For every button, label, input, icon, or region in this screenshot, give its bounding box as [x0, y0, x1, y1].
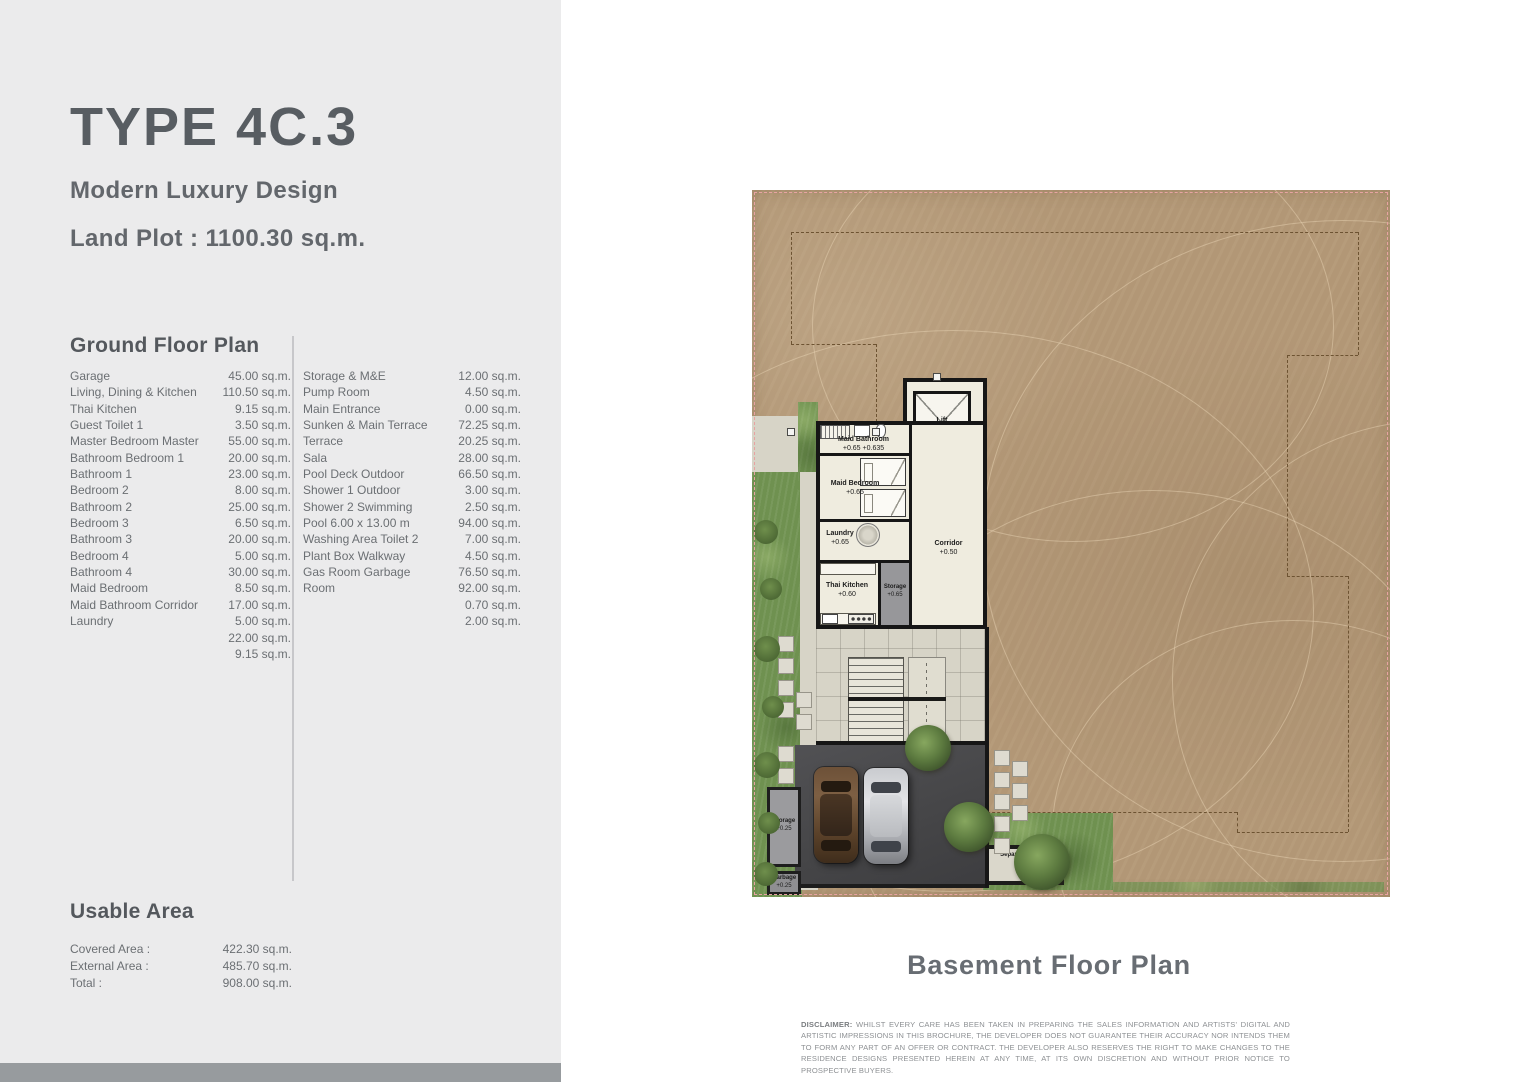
- table-row: Maid Bathroom Corridor17.00 sq.m.: [70, 597, 291, 613]
- disclaimer-label: DISCLAIMER:: [801, 1020, 852, 1029]
- table-row: 9.15 sq.m.: [70, 646, 291, 662]
- table-row: Bedroom 45.00 sq.m.: [70, 548, 291, 564]
- row-value: 9.15 sq.m.: [235, 646, 291, 662]
- table-row: Pump Room4.50 sq.m.: [303, 384, 521, 400]
- row-value: 25.00 sq.m.: [228, 499, 291, 515]
- row-label: Terrace: [303, 433, 343, 449]
- row-label: External Area :: [70, 958, 149, 975]
- row-label: Storage & M&E: [303, 368, 386, 384]
- plan-caption: Basement Floor Plan: [802, 950, 1296, 981]
- design-subtitle: Modern Luxury Design: [70, 177, 338, 205]
- basement-floor-plan-drawing: Garage+0.00 Storage+0.25 Garbage+0.25 Se…: [752, 190, 1390, 897]
- table-row: Bathroom 123.00 sq.m.: [70, 466, 291, 482]
- row-label: Bathroom 2: [70, 499, 132, 515]
- row-value: 0.00 sq.m.: [465, 401, 521, 417]
- row-label: Laundry: [70, 613, 113, 629]
- table-row: Pool 6.00 x 13.00 m94.00 sq.m.: [303, 515, 521, 531]
- row-label: Bathroom Bedroom 1: [70, 450, 184, 466]
- row-value: 12.00 sq.m.: [458, 368, 521, 384]
- row-value: 9.15 sq.m.: [235, 401, 291, 417]
- row-value: 28.00 sq.m.: [458, 450, 521, 466]
- row-label: Living, Dining & Kitchen: [70, 384, 197, 400]
- row-label: Total :: [70, 975, 102, 992]
- ground-floor-plan-heading: Ground Floor Plan: [70, 334, 259, 358]
- row-value: 22.00 sq.m.: [228, 630, 291, 646]
- row-label: Maid Bedroom: [70, 580, 148, 596]
- row-value: 485.70 sq.m.: [223, 958, 292, 975]
- row-value: 2.50 sq.m.: [465, 499, 521, 515]
- table-row: Bathroom Bedroom 120.00 sq.m.: [70, 450, 291, 466]
- row-label: Master Bedroom Master: [70, 433, 199, 449]
- row-label: Shower 2 Swimming: [303, 499, 412, 515]
- table-row: Pool Deck Outdoor66.50 sq.m.: [303, 466, 521, 482]
- row-value: 2.00 sq.m.: [465, 613, 521, 629]
- table-row: Terrace20.25 sq.m.: [303, 433, 521, 449]
- row-value: 4.50 sq.m.: [465, 384, 521, 400]
- table-row: Maid Bedroom8.50 sq.m.: [70, 580, 291, 596]
- row-value: 6.50 sq.m.: [235, 515, 291, 531]
- usable-area-heading: Usable Area: [70, 900, 194, 924]
- row-label: Guest Toilet 1: [70, 417, 143, 433]
- row-label: Bedroom 3: [70, 515, 129, 531]
- row-value: 908.00 sq.m.: [223, 975, 292, 992]
- page-title: TYPE 4C.3: [70, 96, 358, 158]
- table-row: Storage & M&E12.00 sq.m.: [303, 368, 521, 384]
- table-row: Garage45.00 sq.m.: [70, 368, 291, 384]
- row-value: 3.50 sq.m.: [235, 417, 291, 433]
- row-value: 94.00 sq.m.: [458, 515, 521, 531]
- row-value: 20.00 sq.m.: [228, 531, 291, 547]
- table-row: Sunken & Main Terrace72.25 sq.m.: [303, 417, 521, 433]
- row-value: 7.00 sq.m.: [465, 531, 521, 547]
- row-value: 3.00 sq.m.: [465, 482, 521, 498]
- table-row: Thai Kitchen9.15 sq.m.: [70, 401, 291, 417]
- row-label: Garage: [70, 368, 110, 384]
- table-row: Total :908.00 sq.m.: [70, 975, 292, 992]
- row-value: 23.00 sq.m.: [228, 466, 291, 482]
- brochure-page: TYPE 4C.3 Modern Luxury Design Land Plot…: [0, 0, 1524, 1082]
- table-row: Main Entrance0.00 sq.m.: [303, 401, 521, 417]
- table-row: Living, Dining & Kitchen110.50 sq.m.: [70, 384, 291, 400]
- table-row: Bathroom 320.00 sq.m.: [70, 531, 291, 547]
- row-label: Gas Room Garbage: [303, 564, 410, 580]
- disclaimer-text: DISCLAIMER: WHILST EVERY CARE HAS BEEN T…: [801, 1019, 1290, 1076]
- table-row: Bathroom 430.00 sq.m.: [70, 564, 291, 580]
- table-row: Laundry5.00 sq.m.: [70, 613, 291, 629]
- table-row: Guest Toilet 13.50 sq.m.: [70, 417, 291, 433]
- area-table-right: Storage & M&E12.00 sq.m. Pump Room4.50 s…: [303, 368, 521, 630]
- table-row: Room92.00 sq.m.: [303, 580, 521, 596]
- row-value: 110.50 sq.m.: [223, 384, 291, 400]
- table-row: Washing Area Toilet 27.00 sq.m.: [303, 531, 521, 547]
- row-label: Bathroom 3: [70, 531, 132, 547]
- row-label: Bedroom 2: [70, 482, 129, 498]
- area-table-left: Garage45.00 sq.m. Living, Dining & Kitch…: [70, 368, 291, 662]
- row-label: Plant Box Walkway: [303, 548, 405, 564]
- row-label: Sunken & Main Terrace: [303, 417, 428, 433]
- row-label: Main Entrance: [303, 401, 380, 417]
- row-label: Sala: [303, 450, 327, 466]
- row-value: 30.00 sq.m.: [228, 564, 291, 580]
- land-plot-size: Land Plot : 1100.30 sq.m.: [70, 225, 365, 253]
- table-row: Master Bedroom Master55.00 sq.m.: [70, 433, 291, 449]
- row-value: 0.70 sq.m.: [465, 597, 521, 613]
- row-label: Room: [303, 580, 335, 596]
- info-panel: TYPE 4C.3 Modern Luxury Design Land Plot…: [0, 0, 561, 1082]
- table-row: Bathroom 225.00 sq.m.: [70, 499, 291, 515]
- row-value: 5.00 sq.m.: [235, 613, 291, 629]
- footer-bar: [0, 1063, 561, 1082]
- row-value: 17.00 sq.m.: [228, 597, 291, 613]
- row-label: Pool 6.00 x 13.00 m: [303, 515, 410, 531]
- table-row: Sala28.00 sq.m.: [303, 450, 521, 466]
- table-row: Gas Room Garbage76.50 sq.m.: [303, 564, 521, 580]
- row-value: 422.30 sq.m.: [223, 941, 292, 958]
- table-row: External Area :485.70 sq.m.: [70, 958, 292, 975]
- plot-boundary: [754, 192, 1388, 895]
- row-value: 76.50 sq.m.: [458, 564, 521, 580]
- row-label: Washing Area Toilet 2: [303, 531, 418, 547]
- row-value: 20.25 sq.m.: [458, 433, 521, 449]
- row-value: 8.00 sq.m.: [235, 482, 291, 498]
- table-row: 0.70 sq.m.: [303, 597, 521, 613]
- table-row: Bedroom 36.50 sq.m.: [70, 515, 291, 531]
- table-row: Shower 1 Outdoor3.00 sq.m.: [303, 482, 521, 498]
- row-label: Shower 1 Outdoor: [303, 482, 400, 498]
- row-value: 4.50 sq.m.: [465, 548, 521, 564]
- usable-area-table: Covered Area :422.30 sq.m. External Area…: [70, 941, 292, 992]
- table-row: Covered Area :422.30 sq.m.: [70, 941, 292, 958]
- row-label: Maid Bathroom Corridor: [70, 597, 198, 613]
- table-row: Plant Box Walkway4.50 sq.m.: [303, 548, 521, 564]
- row-value: 92.00 sq.m.: [458, 580, 521, 596]
- row-label: Bathroom 1: [70, 466, 132, 482]
- table-row: 22.00 sq.m.: [70, 630, 291, 646]
- table-row: 2.00 sq.m.: [303, 613, 521, 629]
- row-value: 45.00 sq.m.: [228, 368, 291, 384]
- row-value: 55.00 sq.m.: [228, 433, 291, 449]
- row-value: 5.00 sq.m.: [235, 548, 291, 564]
- row-value: 8.50 sq.m.: [235, 580, 291, 596]
- column-divider: [292, 336, 294, 881]
- row-label: Pump Room: [303, 384, 370, 400]
- row-label: Thai Kitchen: [70, 401, 137, 417]
- row-label: Covered Area :: [70, 941, 150, 958]
- row-value: 72.25 sq.m.: [458, 417, 521, 433]
- row-value: 20.00 sq.m.: [228, 450, 291, 466]
- row-label: Bedroom 4: [70, 548, 129, 564]
- table-row: Bedroom 28.00 sq.m.: [70, 482, 291, 498]
- table-row: Shower 2 Swimming2.50 sq.m.: [303, 499, 521, 515]
- row-label: Pool Deck Outdoor: [303, 466, 404, 482]
- row-label: Bathroom 4: [70, 564, 132, 580]
- row-value: 66.50 sq.m.: [458, 466, 521, 482]
